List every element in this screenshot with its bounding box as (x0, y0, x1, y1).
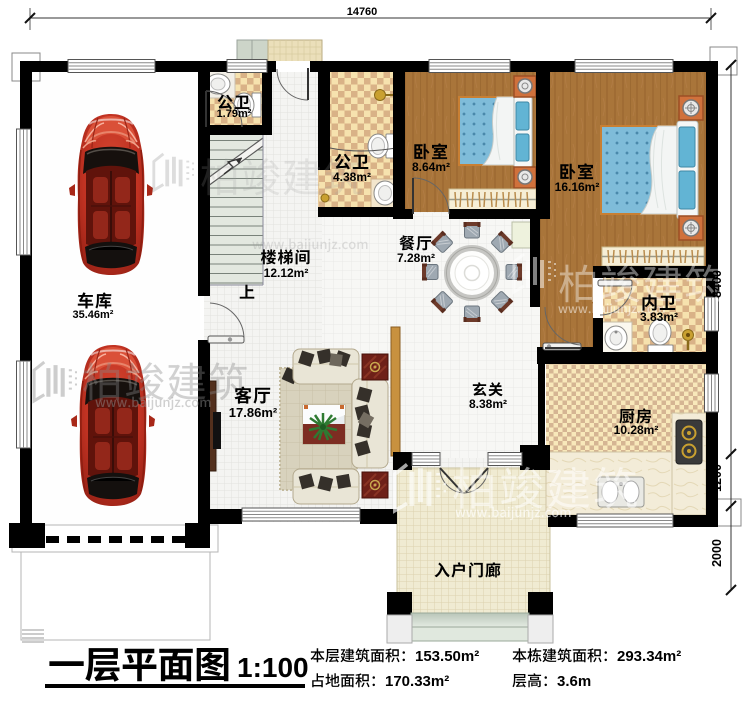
svg-text:293.34m²: 293.34m² (617, 648, 681, 665)
svg-text:8.64m²: 8.64m² (412, 160, 450, 174)
svg-text:14760: 14760 (347, 6, 378, 18)
svg-text:17.86m²: 17.86m² (229, 405, 278, 420)
svg-text:16.16m²: 16.16m² (555, 180, 600, 194)
svg-text:4.38m²: 4.38m² (333, 170, 371, 184)
svg-text:153.50m²: 153.50m² (415, 648, 479, 665)
svg-text:7.28m²: 7.28m² (397, 251, 435, 265)
svg-text:12.12m²: 12.12m² (264, 266, 309, 280)
svg-text:170.33m²: 170.33m² (385, 673, 449, 690)
svg-text:1200: 1200 (710, 464, 724, 492)
svg-text:1.79m²: 1.79m² (217, 108, 252, 120)
svg-text:10.28m²: 10.28m² (614, 423, 659, 437)
svg-text:2000: 2000 (710, 539, 724, 567)
svg-text:35.46m²: 35.46m² (73, 309, 114, 321)
svg-text:3.83m²: 3.83m² (640, 310, 678, 324)
svg-text:8400: 8400 (710, 270, 724, 298)
svg-text:8.38m²: 8.38m² (469, 397, 507, 411)
svg-text:3.6m: 3.6m (557, 673, 591, 690)
svg-text:1:100: 1:100 (237, 652, 309, 683)
